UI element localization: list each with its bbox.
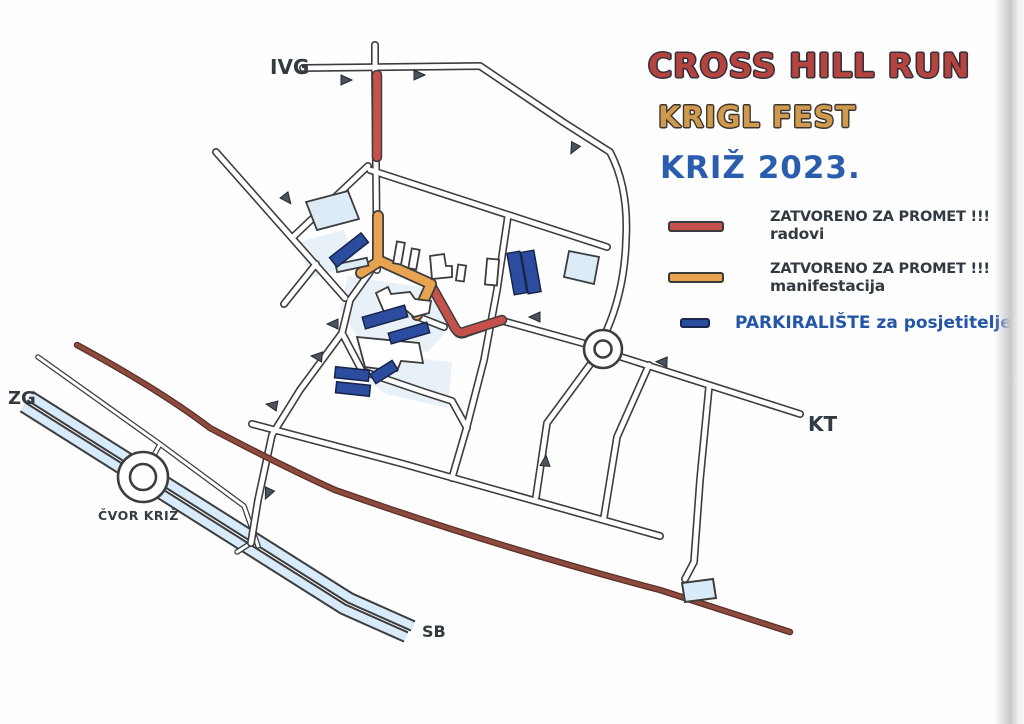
place-label-cvor-kriz: ČVOR KRIŽ bbox=[98, 508, 179, 523]
legend-label-manifestacija-1: ZATVORENO ZA PROMET !!! bbox=[770, 261, 990, 277]
road-label-zg: ZG bbox=[8, 388, 36, 409]
event-map-page: CROSS HILL RUN KRIGL FEST KRIŽ 2023. ZAT… bbox=[0, 0, 1024, 724]
scan-edge-artifact bbox=[994, 0, 1024, 724]
event-subtitle: KRIGL FEST bbox=[658, 100, 856, 134]
event-location-year: KRIŽ 2023. bbox=[660, 150, 861, 186]
legend-swatch-manifestacija bbox=[668, 272, 724, 283]
legend-label-radovi-1: ZATVORENO ZA PROMET !!! bbox=[770, 209, 990, 225]
road-end-pad bbox=[682, 579, 716, 602]
legend-label-manifestacija-2: manifestacija bbox=[770, 278, 885, 295]
roundabout-cvor-kriz bbox=[118, 452, 168, 502]
roundabout-east bbox=[584, 330, 622, 368]
legend-swatch-parking bbox=[680, 318, 710, 328]
road-label-kt: KT bbox=[808, 412, 837, 436]
legend-label-radovi-2: radovi bbox=[770, 226, 824, 243]
road-map-canvas bbox=[0, 0, 1024, 724]
legend-label-parking: PARKIRALIŠTE za posjetitelje bbox=[735, 313, 1012, 333]
legend-swatch-radovi bbox=[668, 221, 724, 232]
event-title: CROSS HILL RUN bbox=[648, 46, 971, 85]
road-label-sb: SB bbox=[422, 622, 446, 641]
road-label-ivg: IVG bbox=[270, 55, 309, 79]
